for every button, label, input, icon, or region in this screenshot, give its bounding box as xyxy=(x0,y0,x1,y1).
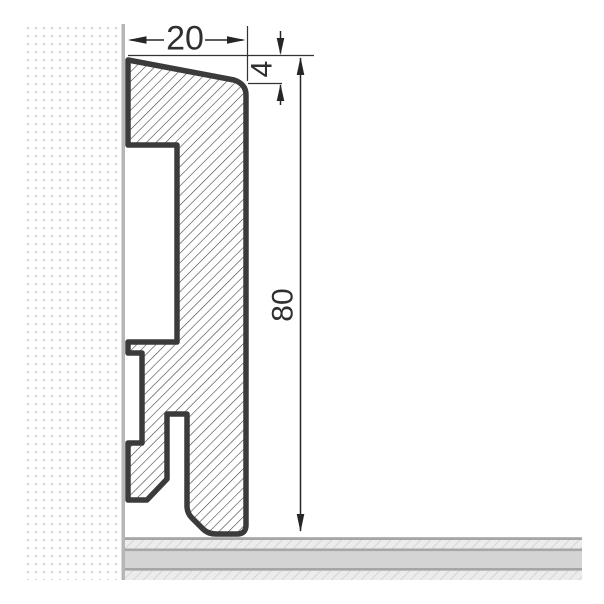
height-dimension-label: 80 xyxy=(267,288,300,321)
floor-border-mid-lower xyxy=(125,568,582,571)
wall-section xyxy=(25,24,125,580)
floor-layer-solid xyxy=(125,551,582,568)
floor-border-top xyxy=(125,537,582,540)
width-dimension-label: 20 xyxy=(166,20,204,58)
floor-border-mid-upper xyxy=(125,549,582,552)
floor-layer-bottom-hatch xyxy=(125,571,582,580)
top-edge-arrowhead-down xyxy=(277,38,285,55)
technical-drawing-canvas: 20 4 80 xyxy=(0,0,604,604)
wall-surface-edge xyxy=(122,24,126,580)
skirting-profile-drawing: 20 4 80 xyxy=(0,0,604,604)
floor-layer-top-hatch xyxy=(125,540,582,549)
height-arrowhead-top xyxy=(297,57,305,75)
wall-dotted-fill xyxy=(25,24,122,580)
width-arrowhead-left xyxy=(128,36,147,44)
dimension-height: 80 xyxy=(267,57,305,532)
skirting-profile-cross-section xyxy=(128,60,246,534)
top-edge-arrowhead-up xyxy=(277,84,285,101)
height-arrowhead-bottom xyxy=(297,514,305,532)
top-edge-dimension-label: 4 xyxy=(246,61,279,78)
floor-section xyxy=(125,537,582,580)
width-arrowhead-right xyxy=(227,36,246,44)
